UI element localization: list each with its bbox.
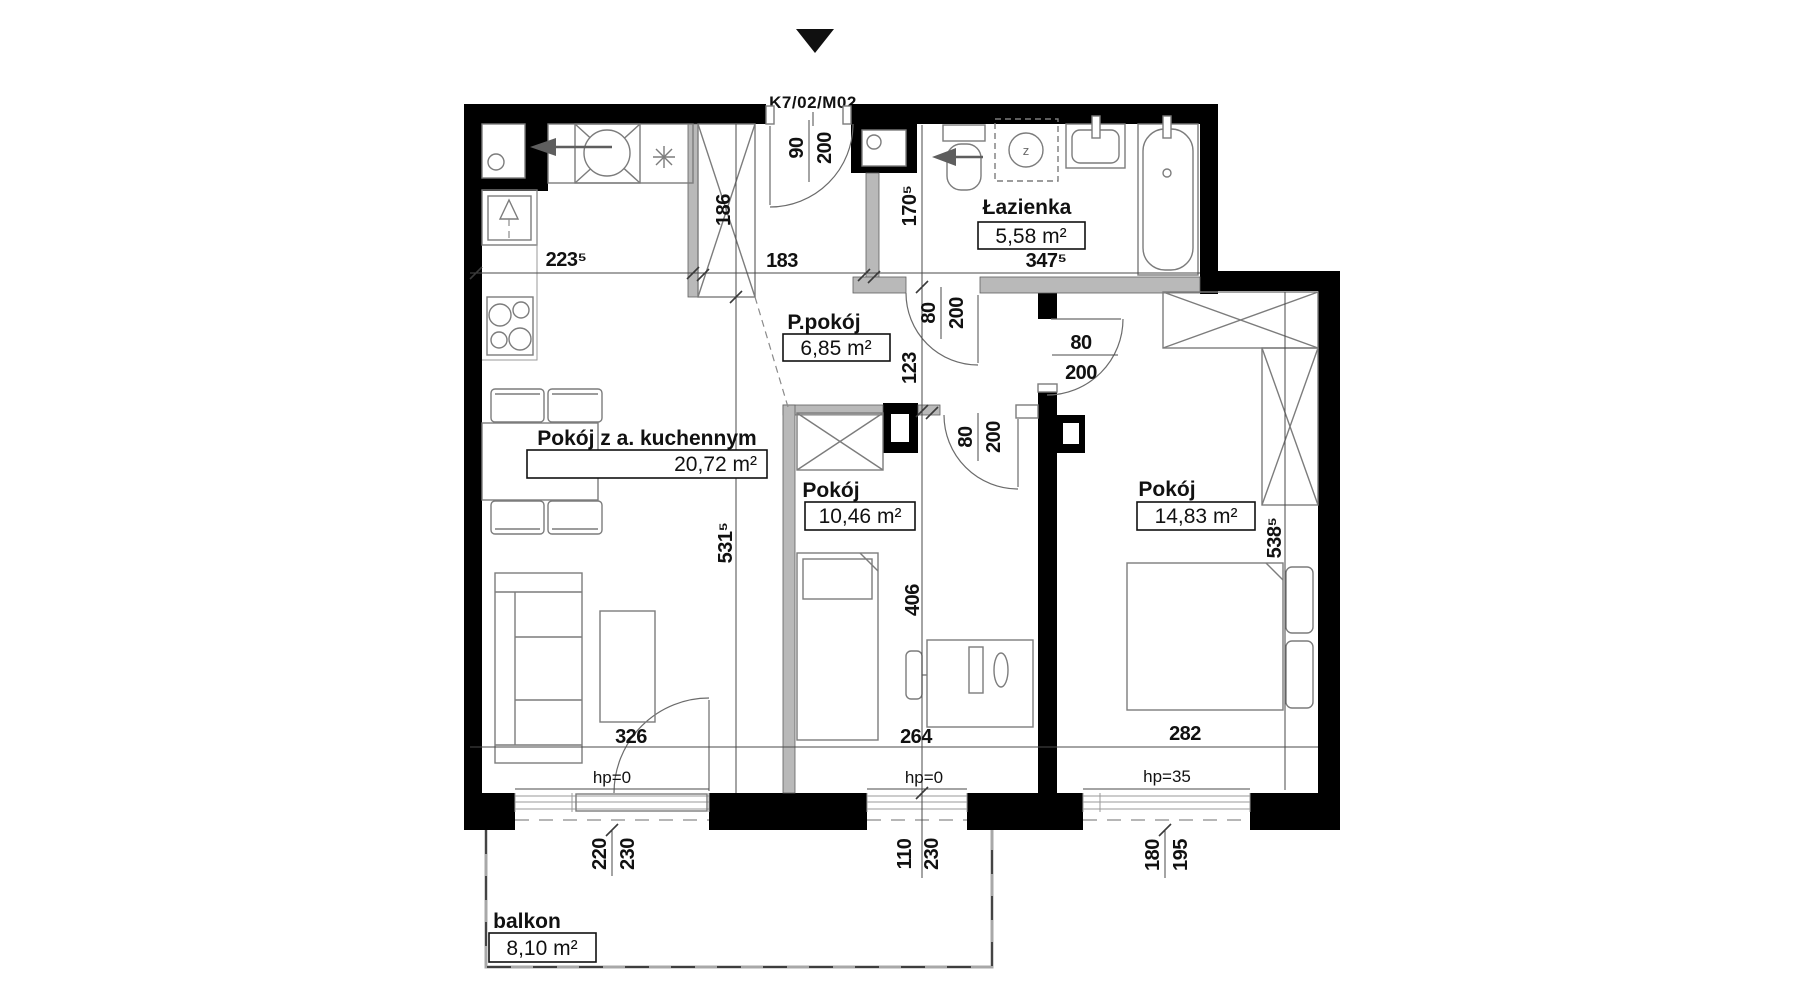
- room-area-bedroom-small: 10,46 m²: [819, 505, 902, 528]
- dim-entry-door-width: 90: [786, 137, 808, 159]
- desk-chair: [906, 651, 922, 699]
- room-area-balcony: 8,10 m²: [506, 937, 577, 960]
- sill-height-living: hp=0: [593, 768, 631, 787]
- pillow: [1286, 567, 1313, 633]
- dim-window-large-height: 195: [1170, 839, 1192, 871]
- stove: [487, 297, 533, 355]
- dim-kitchen-width: 223⁵: [546, 249, 587, 271]
- dim-hall-width: 183: [766, 250, 798, 272]
- single-bed: [797, 553, 878, 740]
- dim-entry-door-height: 200: [814, 132, 836, 164]
- dim-bedroom-small-height: 406: [902, 584, 924, 616]
- washing-machine: z: [995, 119, 1058, 181]
- washbasin: [1066, 116, 1125, 168]
- wardrobe: [797, 413, 883, 470]
- bathtub: [1138, 116, 1198, 275]
- sill-height-large: hp=35: [1143, 767, 1191, 786]
- floor-plan-page: K7/02/M02: [0, 0, 1800, 1008]
- dim-bath-door-width: 80: [918, 302, 940, 324]
- dim-bath-door-height: 200: [946, 297, 968, 329]
- sofa: [495, 573, 582, 763]
- entrance-arrow-icon: [796, 29, 834, 53]
- dim-window-living-width: 220: [589, 838, 611, 870]
- sill-height-small: hp=0: [905, 768, 943, 787]
- room-area-bedroom-large: 14,83 m²: [1155, 505, 1238, 528]
- entry-shaft: [862, 130, 906, 166]
- kitchen-corner-niche: [482, 124, 525, 178]
- washing-machine-symbol: z: [1023, 143, 1030, 158]
- dim-window-large-width: 180: [1142, 839, 1164, 871]
- entry-door: [770, 124, 853, 207]
- dim-bedroom-large-height: 538⁵: [1264, 518, 1286, 559]
- room-area-living: 20,72 m²: [674, 453, 757, 476]
- fridge: [482, 190, 537, 245]
- wardrobe-right: [1262, 348, 1318, 505]
- room-label-bedroom-small: Pokój: [802, 479, 859, 502]
- dim-large-door-height: 200: [1065, 362, 1097, 384]
- room-label-hall: P.pokój: [787, 311, 860, 334]
- pillow: [1286, 641, 1313, 708]
- bedroom-large: [1127, 292, 1318, 710]
- bedroom-small-door: [944, 415, 1018, 489]
- floor-plan-drawing: K7/02/M02: [0, 0, 1800, 1008]
- dim-living-width: 326: [615, 726, 647, 748]
- dim-wardrobe: 186: [713, 194, 735, 226]
- dim-window-living-height: 230: [617, 838, 639, 870]
- room-label-bath: Łazienka: [983, 196, 1072, 219]
- windows: [515, 793, 1250, 830]
- bedroom-small: [797, 413, 1033, 740]
- room-label-living: Pokój z a. kuchennym: [537, 427, 756, 450]
- desk: [906, 640, 1033, 727]
- dim-small-door-height: 200: [983, 421, 1005, 453]
- room-label-bedroom-large: Pokój: [1138, 478, 1195, 501]
- dim-bedroom-small-width: 264: [900, 726, 933, 748]
- side-table: [600, 611, 655, 722]
- dim-bath-height: 170⁵: [899, 186, 921, 227]
- dim-hall-height: 123: [899, 352, 921, 384]
- gas-point-icon: [653, 146, 675, 168]
- kitchen-sink: [575, 124, 640, 183]
- wardrobe-top: [1163, 292, 1318, 348]
- dim-living-height: 531⁵: [715, 523, 737, 564]
- dim-window-small-width: 110: [894, 838, 916, 869]
- drain-arrow-icon: [932, 148, 983, 166]
- dim-large-door-width: 80: [1070, 332, 1092, 354]
- room-area-bath: 5,58 m²: [995, 225, 1066, 248]
- dim-window-small-height: 230: [921, 838, 943, 870]
- room-area-hall: 6,85 m²: [800, 337, 871, 360]
- dim-bath-width: 347⁵: [1026, 250, 1067, 272]
- dim-small-door-width: 80: [955, 426, 977, 448]
- room-label-balcony: balkon: [493, 910, 561, 933]
- kitchen: [464, 124, 788, 407]
- dim-bedroom-large-width: 282: [1169, 723, 1201, 745]
